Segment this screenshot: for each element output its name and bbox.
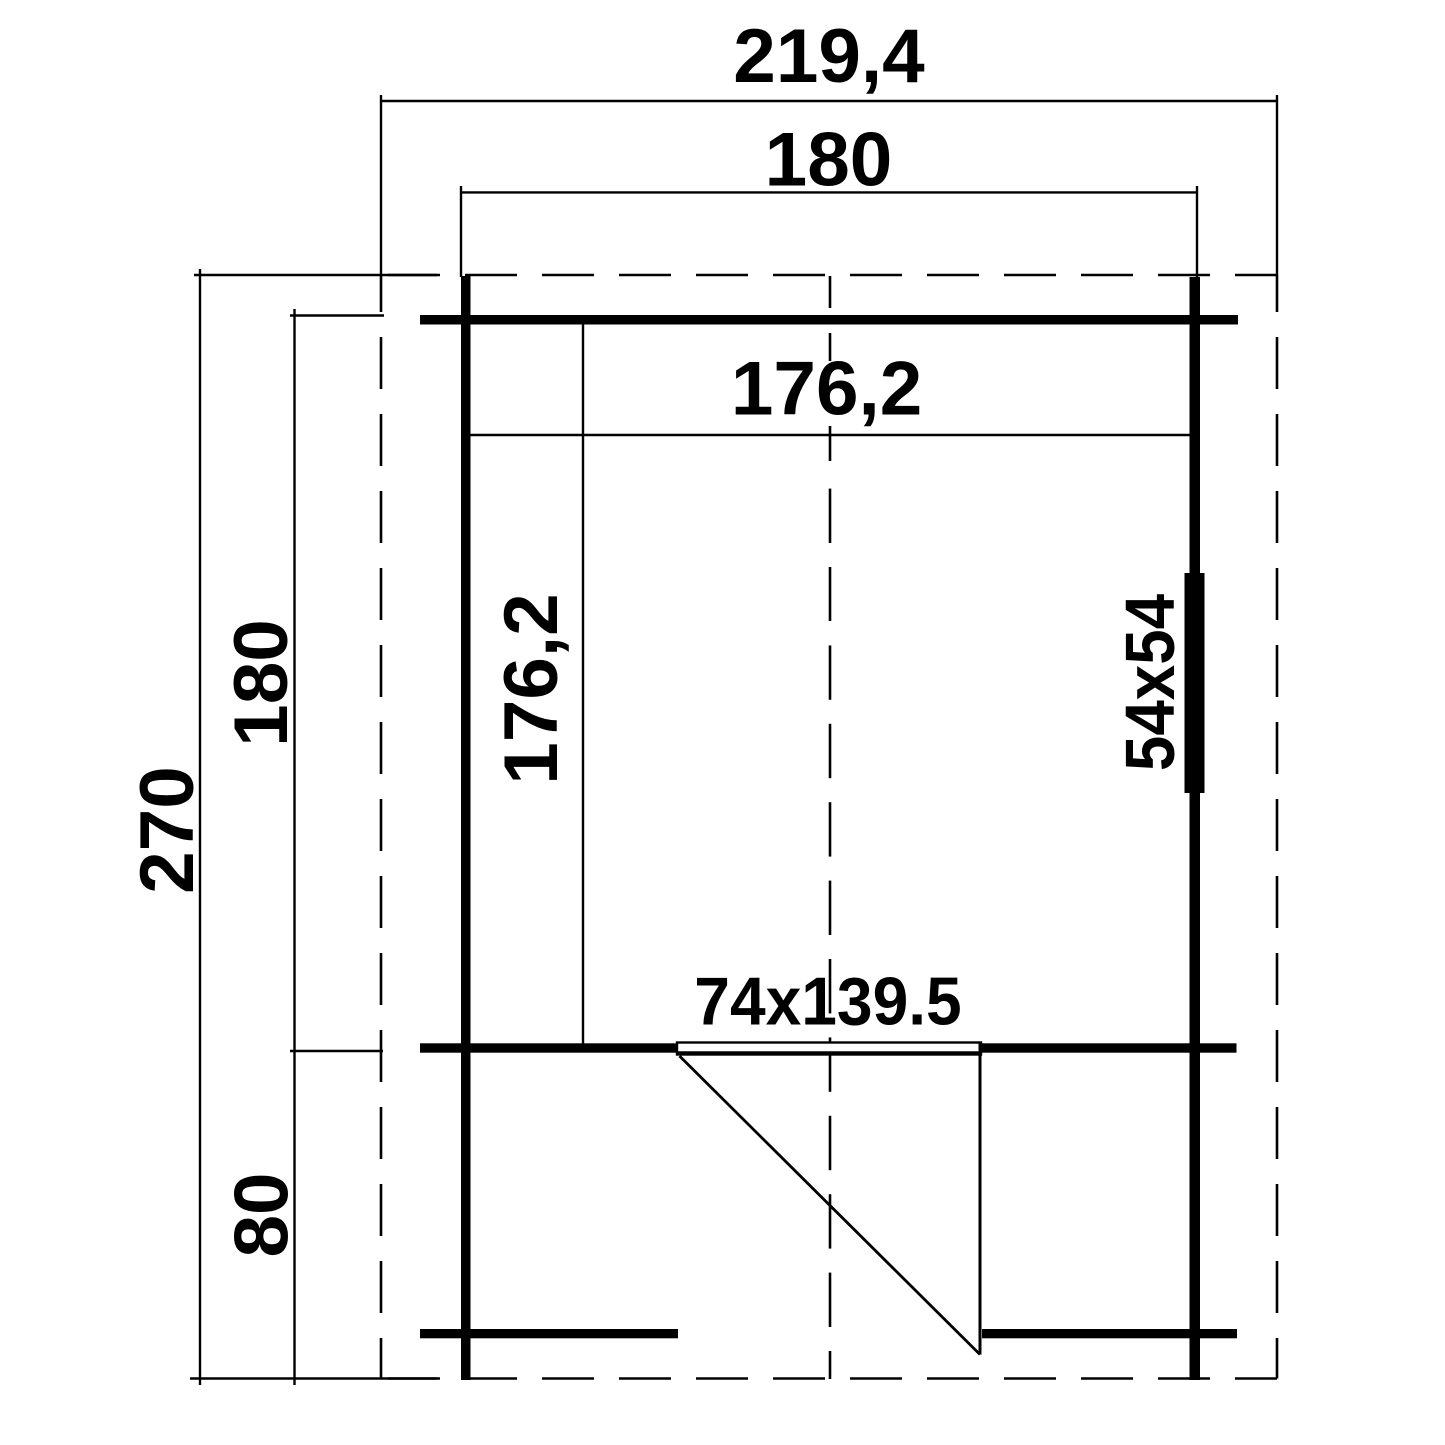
svg-text:219,4: 219,4 (733, 14, 925, 99)
svg-text:54x54: 54x54 (1113, 594, 1190, 771)
svg-text:80: 80 (220, 1172, 305, 1257)
svg-text:74x139.5: 74x139.5 (694, 964, 961, 1040)
svg-text:270: 270 (125, 766, 210, 894)
svg-text:180: 180 (765, 118, 893, 203)
svg-text:180: 180 (219, 619, 304, 747)
svg-text:176,2: 176,2 (489, 593, 574, 784)
svg-text:176,2: 176,2 (731, 347, 922, 432)
